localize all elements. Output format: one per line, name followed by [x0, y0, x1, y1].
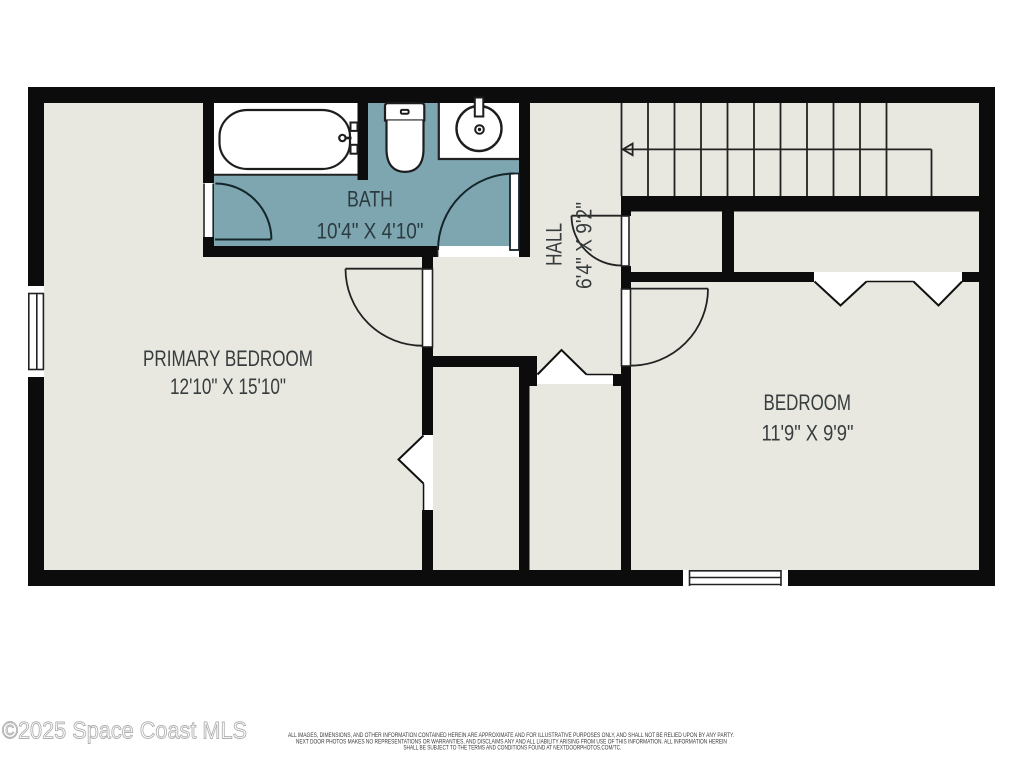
svg-text:PRIMARY BEDROOM: PRIMARY BEDROOM: [143, 346, 313, 371]
svg-text:12'10" X 15'10": 12'10" X 15'10": [170, 374, 286, 399]
svg-text:NEXT DOOR PHOTOS MAKES NO REPR: NEXT DOOR PHOTOS MAKES NO REPRESENTATION…: [296, 739, 727, 745]
svg-text:BATH: BATH: [347, 187, 393, 212]
svg-text:©2025 Space Coast MLS: ©2025 Space Coast MLS: [2, 718, 247, 745]
svg-text:SHALL BE SUBJECT TO THE TERMS: SHALL BE SUBJECT TO THE TERMS AND CONDIT…: [403, 746, 621, 752]
svg-text:11'9" X 9'9": 11'9" X 9'9": [762, 421, 854, 446]
svg-text:HALL: HALL: [542, 223, 567, 266]
svg-text:BEDROOM: BEDROOM: [764, 390, 852, 415]
svg-text:6'4" X 9'2": 6'4" X 9'2": [571, 202, 596, 289]
svg-text:10'4" X 4'10": 10'4" X 4'10": [317, 219, 424, 244]
svg-text:ALL IMAGES, DIMENSIONS, AND OT: ALL IMAGES, DIMENSIONS, AND OTHER INFORM…: [288, 733, 734, 739]
